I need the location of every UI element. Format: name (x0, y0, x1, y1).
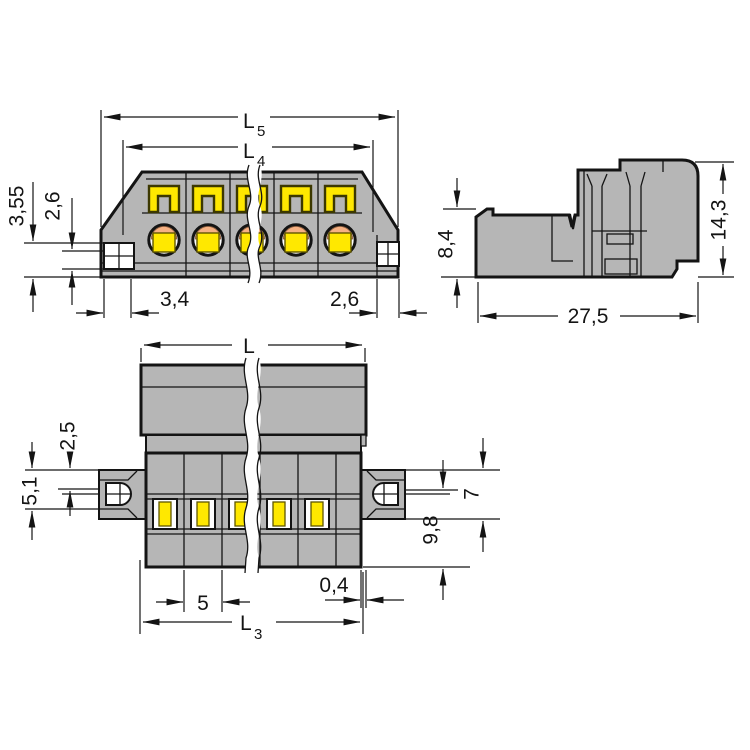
side-body-outline (476, 160, 698, 277)
dim-5-label: 5 (197, 592, 209, 615)
dim-entry-heights: 3,55 2,6 (6, 182, 105, 312)
dim-L5-sub: 5 (257, 123, 265, 140)
front-break (247, 165, 262, 283)
dim-275-label: 27,5 (568, 305, 609, 328)
dim-25-label: 2,5 (57, 421, 80, 450)
dim-143: 14,3 (695, 162, 734, 277)
dim-7-label: 7 (461, 488, 484, 500)
dim-L3-sub: 3 (254, 626, 262, 643)
dim-L4-label: L (243, 140, 255, 163)
dim-L3-label: L (240, 612, 252, 635)
dim-L-label: L (243, 335, 255, 358)
plan-screw-slot-left (106, 483, 131, 505)
dim-26-bottom-label: 2,6 (330, 288, 359, 311)
dim-end-offsets: 3,4 2,6 (76, 279, 427, 318)
dim-26-left-label: 2,6 (42, 191, 65, 220)
dim-L: L (141, 335, 365, 362)
dim-L4-sub: 4 (257, 153, 265, 170)
technical-drawing-page: L 5 L 4 3,55 2,6 (0, 0, 750, 750)
dim-355-label: 3,55 (6, 186, 29, 227)
front-view: L 5 L 4 3,55 2,6 (6, 110, 428, 318)
dim-L5-label: L (243, 110, 255, 133)
side-view: 8,4 14,3 27,5 (435, 160, 735, 328)
dim-51-label: 5,1 (19, 476, 42, 505)
dim-04-label: 0,4 (319, 574, 349, 597)
dim-pitch: 5 (156, 570, 250, 615)
dim-275: 27,5 (478, 282, 698, 328)
drawing-canvas: L 5 L 4 3,55 2,6 (0, 0, 750, 750)
dim-84-label: 8,4 (435, 229, 458, 259)
plan-screw-slot-right (373, 483, 398, 505)
dim-84: 8,4 (435, 178, 477, 308)
plan-view: L 2,5 5,1 7 9,8 (19, 335, 501, 643)
dim-143-label: 14,3 (708, 200, 731, 241)
dim-flange-left: 2,5 5,1 (19, 421, 100, 540)
dim-98-label: 9,8 (420, 515, 443, 544)
dim-offset: 0,4 (319, 570, 404, 608)
plan-edge-tab (361, 435, 366, 446)
dim-34-label: 3,4 (160, 288, 190, 311)
